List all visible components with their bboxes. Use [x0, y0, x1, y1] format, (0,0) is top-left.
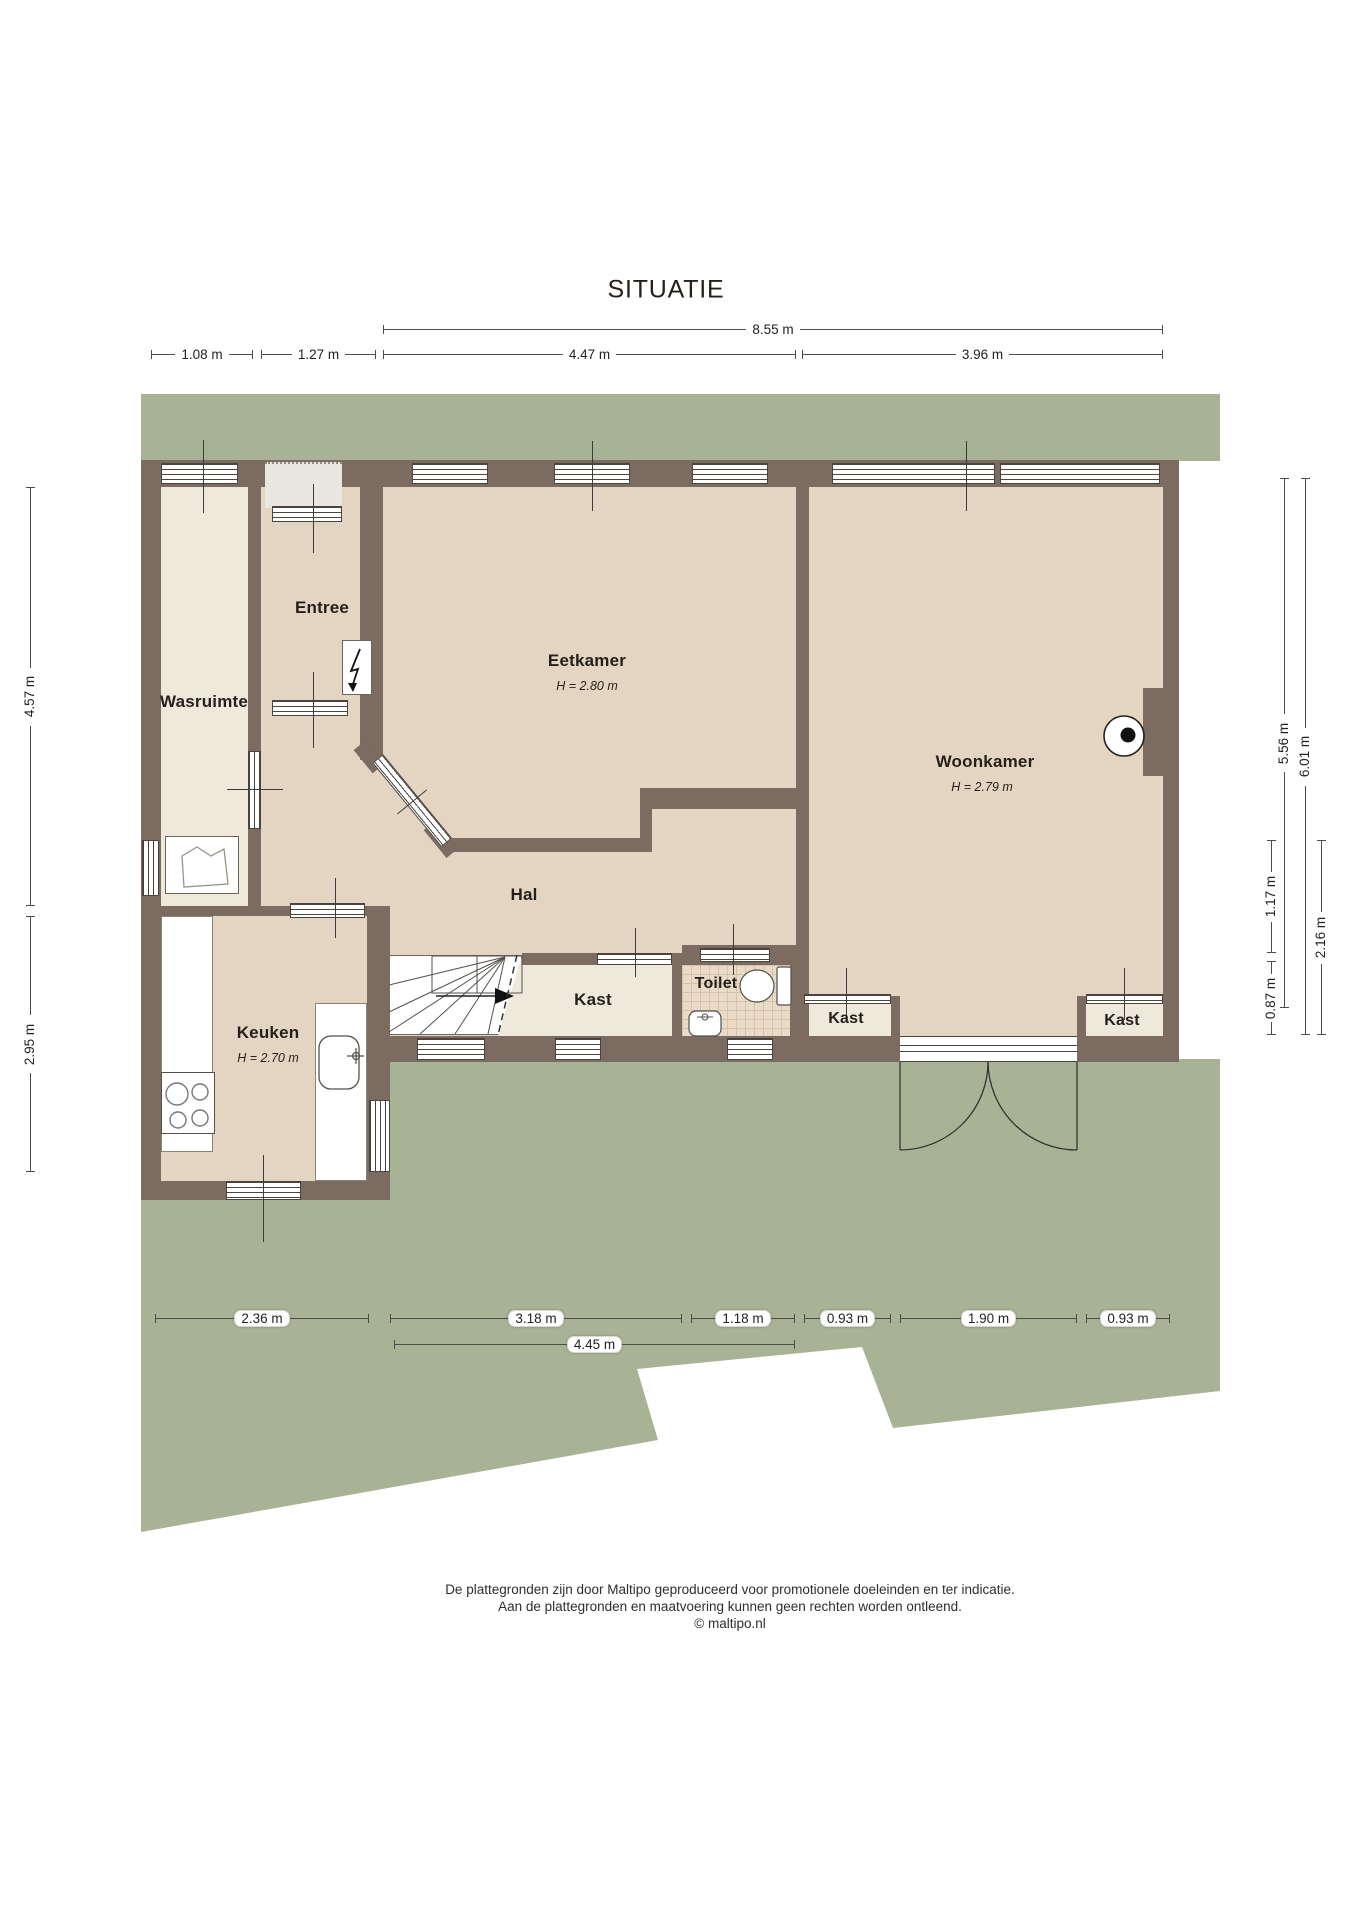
dim-right-216: 2.16 m [1314, 840, 1328, 1035]
double-door-swing-icon [900, 1062, 1077, 1150]
dim-top-108: 1.08 m [151, 347, 253, 362]
dim-label: 0.93 m [820, 1310, 875, 1327]
dim-label: 2.16 m [1314, 917, 1329, 958]
room-label-kast-links: Kast [828, 1010, 863, 1028]
floorplan-page: SITUATIE [0, 0, 1358, 1920]
dim-bottom-118: 1.18 m [691, 1310, 795, 1327]
room-height-keuken: H = 2.70 m [237, 1051, 299, 1065]
wall-flue-chimney [1143, 688, 1163, 776]
window-center-tick [966, 441, 967, 511]
wall-toilet-right [790, 965, 804, 1036]
door-center-tick [635, 928, 636, 977]
wall-kast-rechts-left [1077, 996, 1086, 1036]
double-door-threshold [900, 1036, 1077, 1062]
dim-label: 1.90 m [961, 1310, 1016, 1327]
dim-label: 6.01 m [1298, 736, 1313, 777]
wall-eetkamer-south-right [640, 788, 797, 809]
wall-entree-right [360, 460, 383, 760]
room-height-woonkamer: H = 2.79 m [951, 780, 1013, 794]
window [1000, 463, 1160, 484]
door-hal-keuken [290, 903, 365, 918]
dim-top-855: 8.55 m [383, 322, 1163, 337]
room-label-kast-hal: Kast [574, 990, 612, 1010]
window [417, 1038, 485, 1060]
wall-toilet-left [672, 953, 682, 1036]
wall-eetkamer-south-left [452, 838, 652, 852]
wall-south-b [1077, 1036, 1179, 1062]
window [832, 463, 995, 484]
wall-keuken-top-a [141, 906, 290, 916]
door-hal-toilet [700, 948, 770, 962]
dim-left-457: 4.57 m [23, 487, 37, 906]
dim-right-556: 5.56 m [1277, 478, 1291, 1008]
room-label-woonkamer: Woonkamer [936, 752, 1035, 772]
door-center-tick [733, 924, 734, 975]
dim-top-447: 4.47 m [383, 347, 796, 362]
dim-label: 3.96 m [956, 347, 1009, 362]
wall-wasruimte-right [248, 487, 261, 916]
front-door [272, 506, 342, 522]
dim-label: 1.27 m [292, 347, 345, 362]
window-center-tick [592, 441, 593, 511]
door-keuken-garden [369, 1100, 390, 1172]
dim-bottom-318: 3.18 m [390, 1310, 682, 1327]
dim-label: 1.17 m [1264, 876, 1279, 917]
room-label-keuken: Keuken [237, 1023, 300, 1043]
wall-eetkamer-step [640, 788, 652, 852]
door-center-tick [313, 672, 314, 748]
room-label-entree: Entree [295, 598, 349, 618]
door-center-tick [335, 878, 336, 938]
dim-label: 4.47 m [563, 347, 616, 362]
dim-label: 5.56 m [1277, 722, 1292, 763]
dim-label: 0.93 m [1100, 1310, 1155, 1327]
window [161, 463, 238, 484]
window [142, 840, 159, 896]
dim-label: 3.18 m [508, 1310, 563, 1327]
stairs [387, 955, 522, 1035]
footer-line-2: Aan de plattegronden en maatvoering kunn… [330, 1598, 1130, 1615]
window-center-tick [263, 1155, 264, 1242]
dim-bottom-093b: 0.93 m [1086, 1310, 1170, 1327]
dim-top-396: 3.96 m [802, 347, 1163, 362]
dim-label: 1.08 m [175, 347, 228, 362]
dim-left-295: 2.95 m [23, 916, 37, 1172]
window-center-tick [203, 440, 204, 513]
wall-kast-links-right [891, 996, 900, 1036]
dim-label: 4.57 m [23, 676, 38, 717]
stove [161, 1072, 215, 1134]
window [727, 1038, 773, 1060]
window [692, 463, 768, 484]
footer-line-1: De plattegronden zijn door Maltipo gepro… [330, 1581, 1130, 1598]
door-entree-hal [272, 700, 348, 716]
room-label-wasruimte: Wasruimte [160, 692, 248, 712]
footer-line-3: © maltipo.nl [330, 1615, 1130, 1632]
dim-right-601: 6.01 m [1298, 478, 1312, 1035]
dim-right-117: 1.17 m [1264, 840, 1278, 953]
washing-machine [165, 836, 239, 894]
window [555, 1038, 601, 1060]
dim-bottom-236: 2.36 m [155, 1310, 369, 1327]
dim-bottom-445: 4.45 m [394, 1336, 795, 1353]
dim-label: 0.87 m [1264, 977, 1279, 1018]
meter-cupboard [342, 640, 372, 695]
dim-bottom-093a: 0.93 m [804, 1310, 891, 1327]
room-label-toilet: Toilet [695, 975, 738, 993]
door-center-tick [227, 789, 283, 790]
door-wasruimte-hal [248, 751, 261, 829]
door-center-tick [313, 484, 314, 553]
dim-label: 8.55 m [746, 322, 799, 337]
window [412, 463, 488, 484]
room-label-eetkamer: Eetkamer [548, 651, 626, 671]
dim-label: 4.45 m [567, 1336, 622, 1353]
kitchen-counter-right [315, 1003, 367, 1181]
window-kast-links [804, 994, 891, 1004]
dim-label: 1.18 m [715, 1310, 770, 1327]
room-label-hal: Hal [510, 885, 537, 905]
dim-top-127: 1.27 m [261, 347, 376, 362]
dim-label: 2.95 m [23, 1023, 38, 1064]
room-height-eetkamer: H = 2.80 m [556, 679, 618, 693]
footer-disclaimer: De plattegronden zijn door Maltipo gepro… [330, 1581, 1130, 1632]
room-label-kast-rechts: Kast [1104, 1012, 1139, 1030]
dim-label: 2.36 m [234, 1310, 289, 1327]
dim-bottom-190: 1.90 m [900, 1310, 1077, 1327]
wall-keuken-top-b [365, 906, 390, 916]
dim-right-087: 0.87 m [1264, 961, 1278, 1035]
double-door-frame [900, 1045, 1077, 1052]
page-title: SITUATIE [607, 276, 724, 305]
entrance-porch [265, 462, 342, 508]
